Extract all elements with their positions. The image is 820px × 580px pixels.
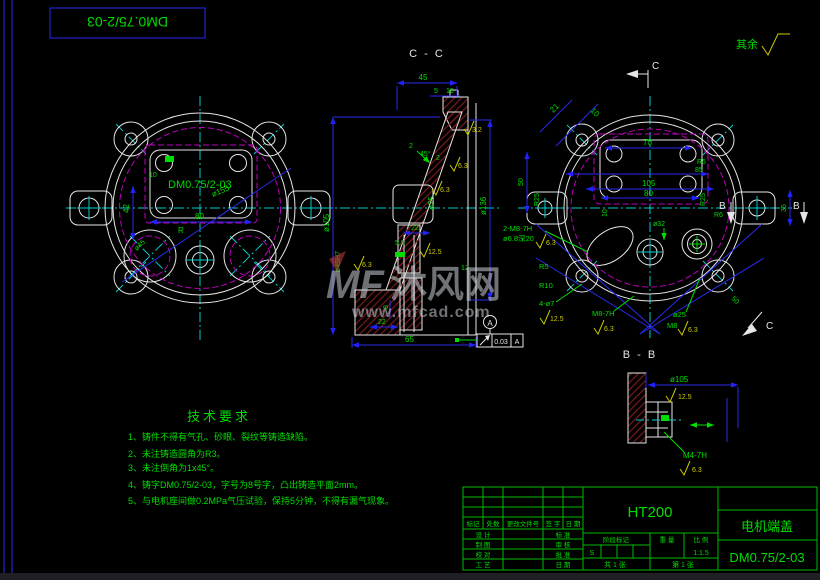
rev-header: 日 期 [566,520,581,528]
dia105-label: ø105 [322,213,331,232]
right-view-labels: C C B B 21 10 70 R5 85 105 80 R25 R25 50… [503,61,800,334]
finish-icons [666,388,690,475]
rev-header: 处数 [487,519,501,528]
section-bb-title: B - B [623,349,657,361]
tech-req-item: 2、未注铸造圆角为R3。 [128,448,226,459]
tech-req-item: 4、铸字DM0.75/2-03，字号为8号字，凸出铸造平面2mm。 [128,479,363,490]
sheet-total: 共 1 张 [604,560,626,569]
tolerance-value: 0.03 [494,339,508,346]
rev-header: 签 字 [546,519,561,528]
runout-symbol-icon [485,335,490,341]
surface-finish-icon [678,321,688,335]
finish-value: 12.5 [678,394,692,401]
r5-note: R5 [539,262,549,271]
dia32-label: ø32 [653,221,665,228]
surface-finish-icon [540,310,550,324]
highlighted-dim [661,415,669,421]
dim10-label: 10 [589,106,602,119]
cut-c-top-label: C [652,61,659,72]
sheet-index: 第 1 张 [672,560,694,569]
dim80-label: 80 [644,189,653,198]
watermark-site-name: 沐风网 [390,264,501,305]
watermark-site-url: www.mfcad.com [351,304,491,321]
cut-b-left-label: B [719,201,726,212]
radius-label: R [178,226,184,235]
role-label: 日 期 [556,561,571,569]
thread-note: 2-M8-7H [503,224,532,233]
leader-line [664,432,684,452]
highlighted-dim [395,252,405,257]
dia25-label: ø25 [427,196,436,210]
rest-note-label: 其余 [736,37,758,51]
finish-value: 6.3 [692,467,702,474]
chamfer-angle-label: 45° [420,150,431,158]
window-bottom-strip [0,573,820,580]
scale-header: 比 例 [694,535,709,544]
leader-lines [545,228,700,312]
r6-label: R6 [714,212,723,219]
role-label: 校 对 [476,550,491,559]
part-name: 电机端盖 [741,519,793,534]
dia136-label: ø136 [479,196,488,215]
dim10-small-label: 10 [602,209,609,217]
highlighted-dim [165,156,174,162]
cut-arrows [626,70,808,336]
r25-right-label: R25 [700,193,707,206]
rev-header: 标记 [467,519,481,528]
finish-value: 12.5 [550,316,564,323]
finish-value: 6.3 [546,240,556,247]
width80-label: 80 [195,212,204,221]
surface-finish-icon [594,320,604,334]
finish-value: 6.3 [688,327,698,334]
scale-value: 1:1.5 [693,550,709,557]
chamfer-label: 2 [436,155,440,162]
sheet-frame [4,0,205,580]
dim45-label: 45 [419,73,428,82]
surface-finish-icon [666,388,676,402]
drawing-number: DM0.75/2-03 [729,550,804,565]
section-cc-title: C - C [409,48,445,60]
dim50-left-label: 50 [518,178,525,186]
m4-thread-label: M4-7H [683,451,707,460]
dia105-label: ø105 [670,375,689,384]
dim5-label: 5 [434,88,438,95]
tolerance-datum: A [515,339,520,346]
finish-value: 6.3 [440,187,450,194]
chamfer-label: 2 [409,143,413,150]
dim85-label: 85 [695,167,703,174]
r5-top-label: R5 [697,159,706,166]
watermark-logo: MF [326,263,385,307]
tech-req-item: 1、铸件不得有气孔、砂眼、裂纹等铸造缺陷。 [128,431,313,442]
r10-note: R10 [539,281,553,290]
finish-value: 6.3 [604,326,614,333]
dimension-lines [646,373,738,442]
cut-b-right-label: B [793,201,800,212]
tech-requirements: 技术要求 1、铸件不得有气孔、砂眼、裂纹等铸造缺陷。 2、未注铸造圆角为R3。 … [128,409,394,506]
dim22-upper-label: 22 [411,225,419,232]
tech-req-item: 5、与电机座间做0.2MPa气压试验，保持5分钟，不得有漏气现象。 [128,495,394,506]
dim5-5-label: 5.5 [395,240,405,247]
dim105-label: 105 [642,179,656,188]
right-view [518,70,808,338]
role-label: 制 图 [476,540,491,549]
surface-finish-icon [762,34,790,55]
dim35-label: 35 [781,204,788,212]
m8-note: M8-7H [592,309,615,318]
finish-value: 12.5 [428,249,442,256]
finish-value: 3.2 [472,127,482,134]
r25-left-label: R25 [534,193,541,206]
cut-c-bottom-label: C [766,321,773,332]
role-label: 批 准 [556,550,571,559]
rev-header: 更改文件号 [507,519,540,528]
role-label: 标 准 [556,530,571,539]
dim10-label: 10 [149,172,157,179]
left-view-labels: DM0.75/2-03 ø155 80 42 R ø45 10 [122,172,232,252]
centerlines [518,96,792,338]
role-label: 设 计 [476,530,491,539]
tech-req-title: 技术要求 [187,409,251,424]
surface-finish-icon [680,461,690,475]
dim70-label: 70 [643,138,652,147]
drill-note: ø6.8深20 [503,234,534,243]
role-label: 工 艺 [476,561,491,569]
stage-value: S [590,550,595,557]
weight-header: 重 量 [660,536,675,544]
holes-note: 4-ø7 [539,299,554,308]
dim65-label: 65 [405,335,414,344]
surface-finish-icon [536,234,546,248]
material-label: HT200 [627,504,672,521]
stage-header: 阶段标记 [603,535,630,544]
tech-req-item: 3、未注倒角为1x45°。 [128,462,219,473]
section-outline [628,373,672,443]
m8-small-note: M8 [667,321,677,330]
role-label: 审 核 [556,540,571,549]
rest-roughness-note: 其余 [736,34,790,55]
cad-drawing-canvas[interactable]: DM0.75/2-03 其余 [0,0,820,580]
dim50-diag-label: 50 [730,295,741,306]
dim10-label: 10 [446,88,454,95]
flipped-title-label: DM0.75/2-03 [87,14,168,30]
boss-crosshair [689,236,705,252]
dia25-note: ø25 [673,310,686,319]
finish-value: 6.3 [458,163,468,170]
height42-label: 42 [122,204,131,213]
